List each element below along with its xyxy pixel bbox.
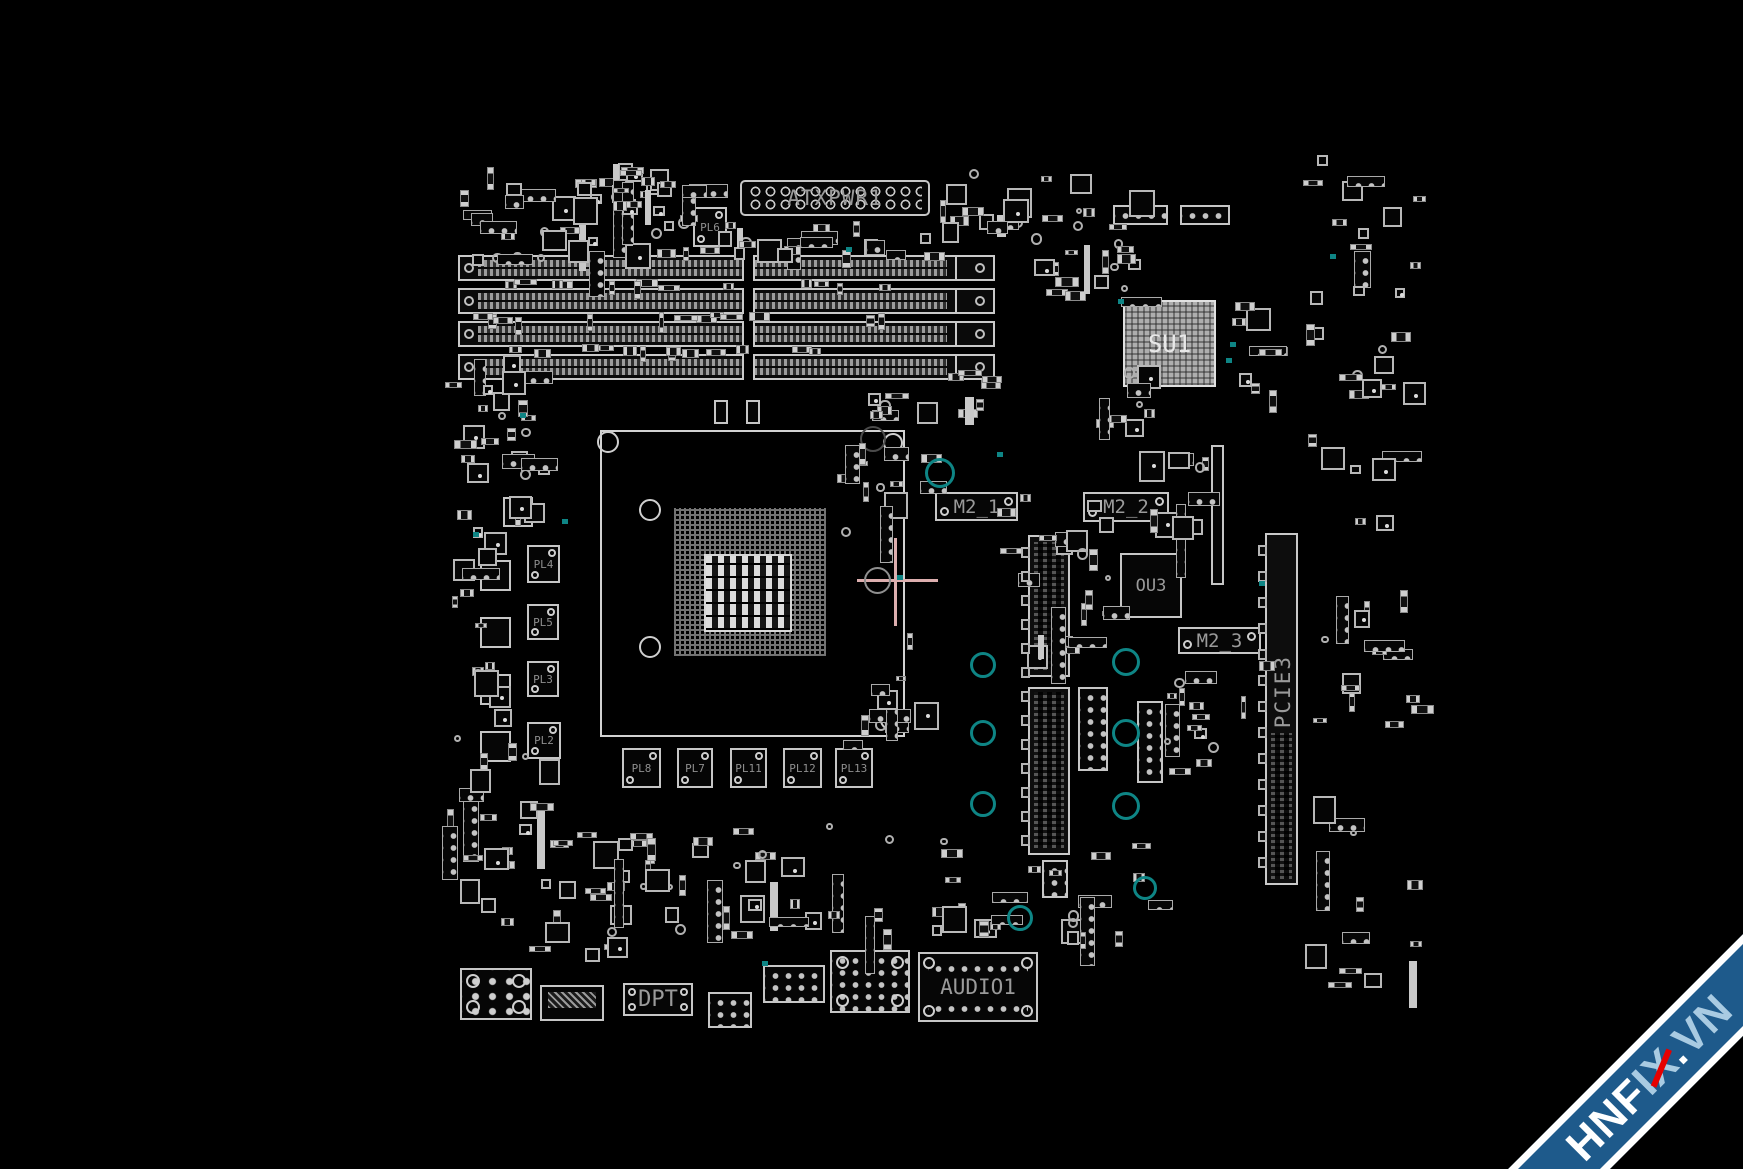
component — [1321, 636, 1329, 644]
component — [1374, 356, 1394, 373]
component — [1055, 277, 1079, 286]
component — [1232, 318, 1246, 325]
dimm-slot-2[interactable] — [458, 288, 995, 314]
component — [1042, 215, 1063, 222]
pad-circle — [548, 549, 556, 557]
slot-tab — [1021, 619, 1030, 630]
component — [1403, 382, 1426, 405]
component — [707, 880, 723, 943]
component — [467, 463, 489, 484]
dimm-pins — [478, 302, 947, 309]
component — [1411, 705, 1434, 714]
component — [1105, 575, 1111, 581]
component — [1084, 245, 1090, 294]
component — [790, 899, 800, 908]
atx-power-connector[interactable]: ATXPWR1 — [740, 180, 930, 216]
component — [587, 314, 593, 330]
component — [480, 221, 517, 234]
component — [1385, 721, 1404, 728]
pad-circle — [755, 752, 763, 760]
component — [1132, 843, 1151, 849]
component — [463, 799, 478, 862]
component — [969, 169, 979, 179]
component — [475, 623, 487, 628]
component — [832, 874, 844, 933]
slot-tab — [1021, 595, 1030, 606]
mounting-hole — [1007, 905, 1033, 931]
pad-circle — [649, 752, 657, 760]
inductor-pl2[interactable]: PL2 — [527, 722, 561, 759]
component — [1259, 349, 1282, 356]
component — [1407, 880, 1424, 889]
component — [1189, 702, 1204, 710]
component — [1364, 640, 1405, 652]
component — [1087, 500, 1102, 512]
inductor-label: PL13 — [841, 762, 868, 775]
component — [521, 458, 559, 471]
watermark-ribbon: HNFIX.VN — [1476, 904, 1743, 1169]
component — [826, 823, 833, 830]
component — [890, 481, 903, 487]
pad-circle — [1004, 497, 1013, 506]
dimm-slot-3[interactable] — [458, 321, 995, 347]
component — [809, 348, 821, 355]
slot-tab — [1021, 643, 1030, 654]
component — [613, 201, 627, 210]
pad-circle — [466, 974, 480, 988]
component — [588, 237, 598, 246]
connector-audio1[interactable]: AUDIO1 — [918, 952, 1038, 1022]
component — [568, 240, 589, 263]
component — [1303, 180, 1323, 186]
vertical-connector[interactable] — [1211, 445, 1224, 585]
dimm-latch-icon — [464, 329, 474, 339]
m2-slot-label: M2_1 — [954, 496, 1000, 518]
slot-tab — [1021, 763, 1030, 774]
component — [1003, 199, 1029, 222]
component — [541, 879, 551, 889]
mounting-hole — [970, 720, 996, 746]
inductor-label: PL8 — [632, 762, 652, 775]
dimm-pins — [478, 293, 947, 300]
component — [1347, 176, 1386, 186]
pad-circle — [681, 776, 689, 784]
component — [666, 347, 680, 355]
slot-tab — [1258, 727, 1267, 738]
component — [1099, 398, 1110, 439]
inductor-pl5[interactable]: PL5 — [527, 604, 559, 640]
component — [1409, 961, 1416, 1008]
component — [718, 231, 733, 247]
slot-tab — [1258, 675, 1267, 686]
dimm-pins — [478, 260, 947, 267]
dimm-end-divider — [955, 289, 957, 313]
component — [590, 894, 612, 901]
component — [645, 869, 670, 892]
component — [865, 916, 876, 973]
component — [507, 428, 516, 441]
test-point — [1230, 342, 1236, 347]
pad-circle — [466, 1000, 480, 1014]
dimm-key-notch — [742, 321, 755, 347]
component — [1391, 332, 1411, 341]
component — [866, 240, 885, 255]
inductor-pl4[interactable]: PL4 — [527, 545, 560, 583]
pad-row — [928, 960, 1028, 974]
hatch-area — [548, 992, 596, 1008]
component — [460, 589, 475, 597]
pad-circle — [1021, 957, 1033, 969]
component — [1136, 401, 1144, 409]
component — [987, 221, 1009, 234]
component — [1031, 233, 1043, 245]
component — [1068, 918, 1078, 928]
component — [460, 879, 481, 904]
component — [1067, 931, 1079, 945]
component — [1336, 596, 1349, 644]
connector-dpt[interactable]: DPT — [623, 983, 693, 1016]
component — [1376, 515, 1394, 531]
test-point — [1226, 358, 1232, 363]
mounting-hole — [1133, 876, 1157, 900]
component — [1196, 759, 1212, 768]
pad-circle — [628, 1003, 636, 1011]
component — [1332, 219, 1347, 225]
slot-tab — [1258, 701, 1267, 712]
component — [1378, 345, 1387, 354]
component — [1239, 373, 1252, 386]
component — [664, 221, 674, 231]
component — [1121, 297, 1162, 307]
component — [1317, 155, 1328, 166]
component — [1076, 208, 1083, 215]
connector-displayport[interactable] — [708, 992, 752, 1028]
component — [1099, 517, 1113, 533]
component — [1148, 900, 1173, 910]
component — [537, 809, 545, 869]
component — [474, 670, 499, 697]
component — [480, 814, 497, 821]
component — [1350, 465, 1360, 475]
component — [653, 206, 665, 216]
component — [880, 506, 893, 563]
slot-tab — [1021, 691, 1030, 702]
component — [634, 281, 641, 299]
component — [878, 313, 886, 331]
slot-tab — [1021, 811, 1030, 822]
component — [1269, 390, 1276, 413]
pin-header-block[interactable] — [1078, 687, 1108, 771]
pad-circle — [810, 752, 818, 760]
component — [1091, 852, 1110, 860]
component — [1065, 250, 1077, 255]
bga-chip-label: SU1 — [1148, 330, 1191, 358]
slot-tab — [1258, 623, 1267, 634]
component — [1310, 291, 1323, 305]
component — [1065, 291, 1086, 301]
component — [1321, 447, 1345, 470]
component — [508, 743, 518, 761]
component — [514, 279, 537, 285]
component — [1129, 190, 1154, 217]
connector-round-pins[interactable] — [460, 968, 532, 1020]
slot-tab — [1258, 753, 1267, 764]
component — [509, 346, 523, 353]
component — [924, 252, 944, 261]
dimm-key-notch — [742, 354, 755, 380]
component — [706, 349, 726, 356]
component — [1305, 944, 1327, 970]
dimm-latch-icon — [975, 263, 985, 273]
mounting-hole — [970, 791, 996, 817]
component — [1354, 610, 1371, 628]
socket-hole — [639, 636, 661, 658]
component — [657, 249, 676, 258]
component — [515, 317, 522, 335]
component — [585, 948, 600, 963]
component — [1383, 207, 1401, 227]
pad-circle — [861, 752, 869, 760]
pad-circle — [787, 776, 795, 784]
component — [1041, 176, 1052, 182]
pcie-tail-header — [1042, 860, 1068, 898]
inductor-pl12[interactable]: PL12 — [783, 748, 822, 788]
pad-circle — [628, 988, 636, 996]
component — [940, 838, 948, 846]
component — [674, 315, 698, 321]
component — [958, 370, 982, 376]
component — [1168, 452, 1190, 470]
component — [1038, 635, 1044, 659]
pcie3-slot[interactable]: PCIE3 — [1265, 533, 1298, 885]
component — [1102, 250, 1110, 273]
component — [1077, 548, 1089, 560]
connector-hatched[interactable] — [540, 985, 604, 1021]
component — [1306, 324, 1315, 346]
inductor-label: PL4 — [534, 558, 554, 571]
component — [1080, 897, 1095, 966]
component — [470, 769, 492, 793]
inductor-pl7[interactable]: PL7 — [677, 748, 713, 788]
component — [1139, 451, 1165, 481]
component — [945, 877, 960, 882]
component — [861, 715, 869, 736]
chip-label: OU3 — [1136, 576, 1167, 596]
pad-circle — [836, 956, 849, 969]
component — [733, 862, 741, 870]
component — [777, 248, 793, 263]
component — [442, 826, 458, 879]
component — [979, 921, 988, 936]
inductor-pl8[interactable]: PL8 — [622, 748, 661, 788]
component — [1167, 693, 1177, 699]
component — [1358, 228, 1369, 239]
component — [886, 250, 906, 261]
header-connector[interactable] — [1180, 205, 1230, 225]
component — [884, 447, 908, 461]
component — [454, 440, 477, 450]
component — [462, 568, 501, 580]
pad-circle — [512, 1000, 526, 1014]
component — [457, 510, 472, 520]
pad-circle — [923, 957, 935, 969]
connector-header[interactable] — [763, 965, 825, 1003]
component — [1049, 870, 1061, 876]
component — [1109, 224, 1127, 230]
component — [1195, 462, 1206, 473]
component — [879, 284, 890, 291]
cpu-socket-cavity — [704, 554, 792, 632]
component — [640, 346, 646, 362]
component — [800, 237, 833, 248]
component — [501, 918, 513, 925]
component — [1342, 932, 1369, 944]
inductor-pl13[interactable]: PL13 — [835, 748, 873, 788]
component — [480, 753, 488, 770]
pin-header-block[interactable] — [1137, 701, 1163, 783]
component — [607, 937, 628, 958]
pad-circle — [701, 752, 709, 760]
component — [1080, 932, 1085, 949]
component — [725, 222, 736, 229]
component — [733, 828, 754, 834]
component — [1089, 549, 1098, 571]
component — [481, 898, 496, 913]
m2-slot-label: M2_3 — [1197, 630, 1243, 652]
component — [582, 344, 598, 352]
inductor-pl3[interactable]: PL3 — [527, 661, 559, 697]
component — [982, 376, 1001, 383]
pad-circle — [531, 747, 539, 755]
pad-circle — [891, 956, 904, 969]
component — [748, 899, 762, 912]
slot-tab — [1258, 805, 1267, 816]
component — [493, 392, 510, 411]
component — [625, 243, 651, 269]
component — [723, 906, 730, 930]
component — [647, 838, 656, 862]
selection-ring — [864, 567, 891, 594]
socket-top-pad — [714, 400, 728, 424]
component — [1000, 548, 1023, 554]
dimm-pins — [478, 359, 947, 366]
component — [845, 445, 860, 485]
component — [1410, 262, 1421, 269]
component — [745, 860, 766, 882]
connector-label: DPT — [638, 987, 678, 1012]
component — [559, 881, 577, 899]
pad-circle — [531, 628, 539, 636]
inductor-label: PL7 — [685, 762, 705, 775]
component — [537, 254, 545, 262]
component — [552, 280, 563, 289]
inductor-label: PL2 — [534, 734, 554, 747]
pad-circle — [734, 776, 742, 784]
component — [502, 371, 526, 395]
pad-circle — [1183, 640, 1192, 649]
component — [651, 228, 662, 239]
component — [1150, 509, 1158, 533]
component — [1174, 678, 1184, 688]
component — [700, 247, 720, 254]
component — [917, 402, 939, 424]
pad-circle — [891, 994, 904, 1007]
component — [920, 233, 931, 244]
pad-circle — [680, 988, 688, 996]
pad-circle — [512, 974, 526, 988]
pad-circle — [531, 571, 539, 579]
component — [658, 285, 680, 291]
component — [876, 483, 884, 491]
component — [1246, 308, 1271, 331]
test-point — [520, 413, 526, 418]
component — [682, 185, 707, 199]
component — [445, 382, 462, 389]
component — [1144, 409, 1155, 419]
component — [1188, 492, 1220, 506]
component — [1094, 275, 1110, 289]
component — [749, 312, 770, 321]
dimm-key-notch — [742, 288, 755, 314]
component — [498, 412, 507, 421]
component — [481, 438, 499, 446]
dimm-end-divider — [955, 256, 957, 280]
component — [1381, 384, 1397, 389]
component — [1117, 246, 1134, 253]
component — [641, 177, 655, 187]
test-point — [846, 247, 852, 252]
component — [1125, 419, 1144, 437]
component — [505, 195, 525, 210]
component — [1110, 263, 1118, 271]
component — [885, 393, 909, 400]
m2-slot-3[interactable]: M2_3 — [1178, 627, 1261, 654]
slot-tab — [1021, 787, 1030, 798]
component — [1364, 973, 1382, 988]
component — [946, 184, 967, 205]
component — [1308, 434, 1317, 447]
pad-circle — [940, 507, 949, 516]
component — [871, 684, 890, 697]
pad-circle — [836, 994, 849, 1007]
component — [781, 857, 805, 877]
component — [769, 917, 809, 928]
component — [801, 279, 812, 287]
pad-circle — [1247, 632, 1256, 641]
component — [1406, 695, 1420, 703]
component — [1328, 982, 1352, 988]
component — [1103, 606, 1131, 620]
slot-tab — [1021, 547, 1030, 558]
component — [1121, 285, 1128, 292]
component — [914, 702, 940, 730]
component — [1259, 661, 1275, 671]
inductor-pl11[interactable]: PL11 — [730, 748, 767, 788]
component — [962, 207, 984, 216]
component — [1313, 718, 1327, 723]
component — [1316, 851, 1330, 911]
component — [1355, 518, 1366, 525]
inductor-label: PL12 — [789, 762, 816, 775]
component — [493, 317, 513, 324]
component — [452, 596, 458, 608]
component — [1020, 494, 1032, 503]
component — [1070, 174, 1092, 194]
component — [542, 230, 567, 251]
component — [1192, 714, 1209, 720]
component — [1083, 208, 1095, 217]
component — [1339, 968, 1362, 974]
